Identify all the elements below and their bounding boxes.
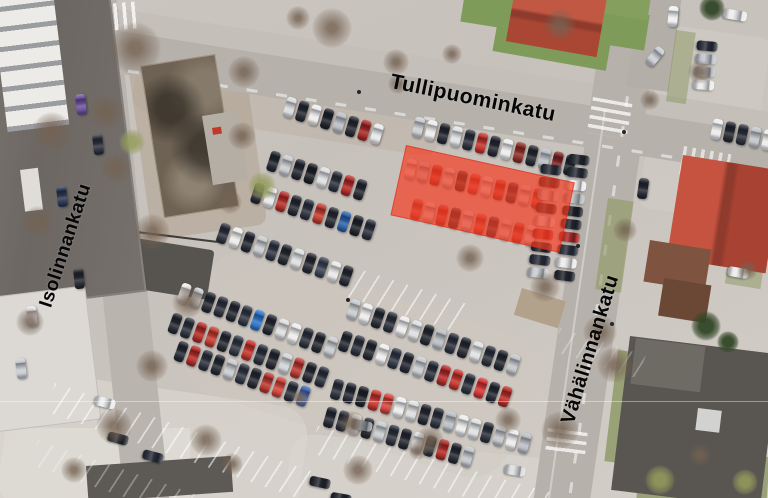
bare-tree-icon — [16, 308, 44, 336]
light-pole — [622, 130, 626, 134]
bare-tree-icon — [100, 152, 132, 184]
conifer-tree-icon — [699, 0, 725, 21]
car — [540, 163, 562, 175]
bare-tree-icon — [88, 94, 124, 130]
conifer-tree-icon — [717, 331, 739, 353]
map-scene — [0, 0, 768, 498]
bare-tree-icon — [613, 218, 637, 242]
bare-tree-icon — [109, 22, 161, 74]
green-tree-icon — [732, 469, 758, 495]
car — [722, 8, 747, 22]
bare-tree-icon — [228, 56, 260, 88]
green-tree-icon — [248, 172, 276, 200]
bare-tree-icon — [32, 112, 72, 152]
bare-tree-icon — [688, 60, 712, 84]
bare-tree-icon — [221, 453, 243, 475]
light-pole — [357, 90, 361, 94]
car — [696, 40, 718, 52]
bare-tree-icon — [22, 206, 54, 238]
light-pole — [346, 298, 350, 302]
bare-tree-icon — [61, 457, 87, 483]
map-grid-line — [0, 401, 768, 402]
car — [517, 432, 532, 455]
car — [73, 268, 85, 290]
car — [56, 186, 68, 208]
bare-tree-icon — [456, 244, 484, 272]
bare-tree-icon — [134, 214, 170, 250]
rooftop-unit — [695, 408, 722, 433]
car — [529, 254, 551, 266]
car — [15, 358, 27, 380]
bare-tree-icon — [544, 9, 576, 41]
car — [667, 6, 679, 28]
bare-tree-icon — [218, 190, 242, 214]
car — [92, 134, 104, 156]
bare-tree-icon — [597, 347, 633, 383]
bare-tree-icon — [291, 389, 309, 407]
green-tree-icon — [119, 129, 145, 155]
car — [361, 218, 377, 241]
car — [566, 166, 588, 178]
car — [460, 445, 475, 468]
bare-tree-icon — [343, 455, 373, 485]
bare-tree-icon — [136, 350, 168, 382]
bare-tree-icon — [408, 440, 428, 460]
bare-tree-icon — [339, 411, 365, 437]
car — [75, 94, 87, 116]
bare-tree-icon — [530, 272, 560, 302]
bare-tree-icon — [640, 90, 660, 110]
bare-tree-icon — [190, 424, 222, 456]
bare-tree-icon — [228, 122, 256, 150]
aerial-map: Tullipuominkatu Isolinnankatu Vähälinnan… — [0, 0, 768, 498]
car — [568, 153, 590, 165]
car — [735, 123, 749, 146]
bare-tree-icon — [442, 44, 462, 64]
red-container — [212, 127, 222, 135]
bare-tree-icon — [689, 444, 711, 466]
bare-tree-icon — [286, 6, 310, 30]
conifer-tree-icon — [691, 311, 721, 341]
car — [369, 123, 385, 146]
bare-tree-icon — [312, 8, 352, 48]
bare-tree-icon — [495, 407, 521, 433]
light-pole — [576, 244, 580, 248]
car — [760, 129, 768, 152]
car — [352, 178, 368, 201]
green-tree-icon — [645, 465, 675, 495]
bare-tree-icon — [738, 260, 758, 280]
car — [748, 126, 762, 149]
bare-tree-icon — [172, 286, 204, 318]
bare-tree-icon — [96, 408, 132, 444]
car — [722, 121, 736, 144]
car — [555, 257, 577, 269]
